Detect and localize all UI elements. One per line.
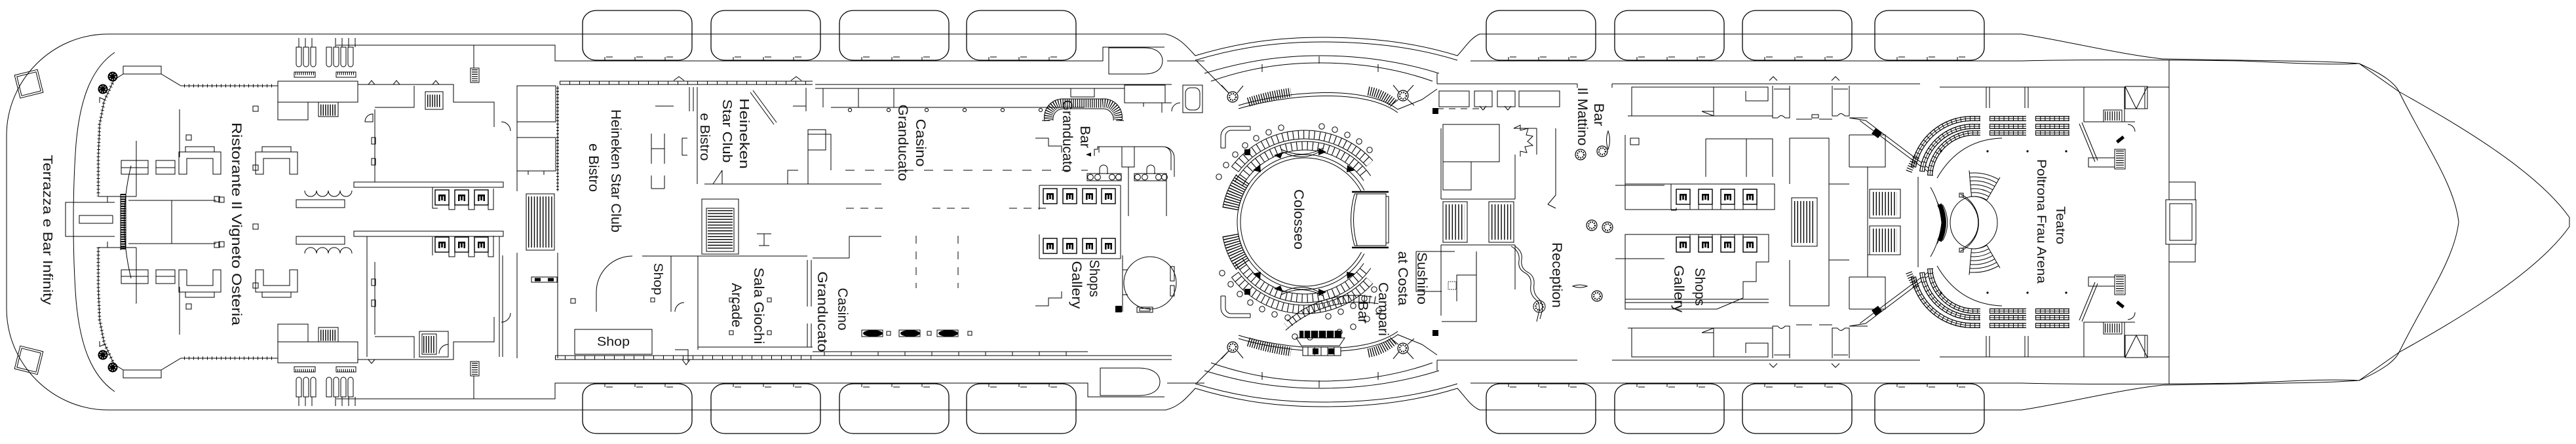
svg-text:e Bistro: e Bistro — [586, 143, 601, 192]
svg-text:Granducato: Granducato — [1060, 100, 1075, 173]
svg-text:Il Mattino: Il Mattino — [1575, 88, 1590, 146]
svg-text:Heineken Star Club: Heineken Star Club — [608, 109, 623, 232]
svg-text:Shop: Shop — [597, 335, 630, 349]
svg-text:Poltrona Frau Arena: Poltrona Frau Arena — [2034, 159, 2048, 284]
svg-text:Star Club: Star Club — [720, 100, 734, 163]
svg-text:Gallery: Gallery — [1069, 261, 1084, 310]
svg-text:Heineken: Heineken — [737, 98, 751, 169]
svg-text:Arcade: Arcade — [729, 283, 744, 327]
svg-text:Casino: Casino — [913, 119, 928, 167]
svg-text:Granducato: Granducato — [895, 105, 910, 181]
svg-text:Campari: Campari — [1375, 282, 1391, 336]
svg-text:Gallery: Gallery — [1671, 265, 1686, 313]
svg-text:Shops: Shops — [1086, 260, 1102, 297]
svg-text:Granducato: Granducato — [815, 272, 830, 352]
svg-text:Shop: Shop — [651, 263, 665, 295]
svg-text:Bar: Bar — [1077, 126, 1092, 148]
svg-text:e Bistro: e Bistro — [697, 113, 712, 161]
svg-text:Teatro: Teatro — [2053, 206, 2067, 244]
svg-text:Reception: Reception — [1549, 242, 1564, 308]
svg-text:Bar: Bar — [1591, 103, 1606, 126]
svg-text:at Costa: at Costa — [1395, 251, 1410, 306]
svg-text:Ristorante Il Vigneto Osteria: Ristorante Il Vigneto Osteria — [229, 122, 244, 325]
svg-text:Colosseo: Colosseo — [1291, 189, 1306, 250]
svg-text:Sala Giochi: Sala Giochi — [751, 268, 766, 344]
svg-text:Casino: Casino — [835, 288, 850, 331]
svg-text:Terrazza e Bar Infinity: Terrazza e Bar Infinity — [40, 155, 54, 305]
svg-text:Bar: Bar — [1355, 301, 1370, 324]
svg-text:Shops: Shops — [1692, 268, 1707, 306]
svg-text:Sushino: Sushino — [1414, 252, 1429, 305]
